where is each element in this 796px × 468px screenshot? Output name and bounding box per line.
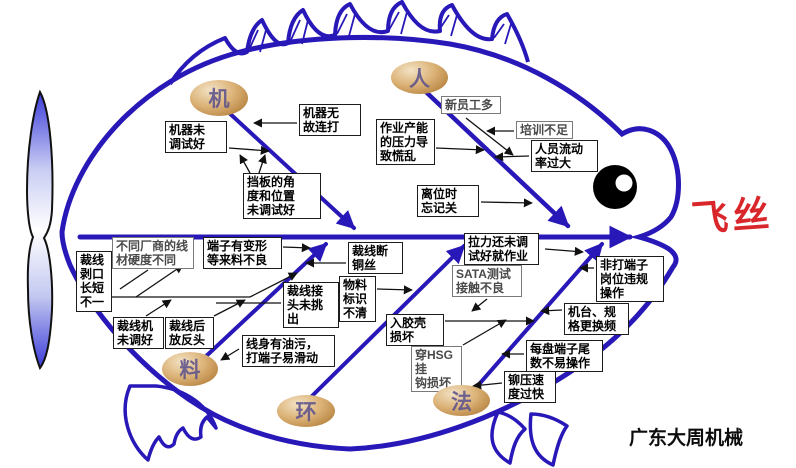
effect-label: 飞丝 xyxy=(689,183,775,243)
cause-forget-to-switch-off: 离位时 忘记关 xyxy=(417,185,479,217)
cause-joints-not-picked-out: 裁线接 头未挑 出 xyxy=(283,282,339,328)
cause-non-crimp-post-violation: 非打端子 岗位违规 操作 xyxy=(596,256,664,302)
cause-insufficient-training: 培训不足 xyxy=(516,121,573,139)
category-machine: 机 xyxy=(190,80,248,116)
category-method: 法 xyxy=(433,385,490,416)
cause-capacity-pressure-panic: 作业产能 的压力导 致慌乱 xyxy=(376,119,435,165)
cause-baffle-angle-position: 挡板的角 度和位置 未调试好 xyxy=(243,173,321,219)
cause-crimp-speed-too-fast: 铆压速 度过快 xyxy=(504,371,556,403)
fish-eye xyxy=(593,165,637,209)
category-man: 人 xyxy=(391,61,448,94)
cause-machine-random-strike: 机器无 故连打 xyxy=(299,104,361,136)
cause-shell-insert-damage: 入胶壳 损坏 xyxy=(386,314,444,346)
cause-wire-hardness-differs: 不同厂商的线 材硬度不同 xyxy=(112,237,194,269)
cause-work-before-tension-tuned: 拉力还未调 试好就作业 xyxy=(464,233,539,265)
tail-fin xyxy=(27,92,53,368)
cause-strip-length-uneven: 裁线 剥口 长短 不一 xyxy=(76,251,112,312)
cause-machine-not-tuned: 机器未 调试好 xyxy=(165,121,227,153)
cause-reel-tail-hard-to-handle: 每盘端子尾 数不易操作 xyxy=(526,340,603,372)
cause-material-label-unclear: 物料 标识 不清 xyxy=(339,276,376,322)
cause-sata-test-bad-contact: SATA测试 接触不良 xyxy=(452,265,522,297)
fishbone-diagram: 机器未 调试好 机器无 故连打 挡板的角 度和位置 未调试好 新员工多 培训不足… xyxy=(0,0,796,468)
cause-cutter-not-adjusted: 裁线机 未调好 xyxy=(113,317,164,349)
watermark: 广东大周机械 xyxy=(629,423,743,450)
dorsal-fin xyxy=(170,2,528,84)
cause-reversed-after-cutting: 裁线后 放反头 xyxy=(165,317,214,349)
pelvic-fins xyxy=(125,386,567,465)
cause-frequent-machine-spec-change: 机台、规 格更换频 xyxy=(564,303,629,335)
cause-many-new-employees: 新员工多 xyxy=(441,96,501,114)
cause-oily-wire-slips: 线身有油污， 打端子易滑动 xyxy=(242,335,335,367)
cause-copper-wire-broken: 裁线断 铜丝 xyxy=(348,242,403,274)
cause-terminal-deformed-incoming: 端子有变形 等来料不良 xyxy=(203,237,282,269)
category-environment: 环 xyxy=(277,395,335,427)
category-material: 料 xyxy=(162,352,218,386)
cause-high-turnover: 人员流动 率过大 xyxy=(531,140,598,172)
